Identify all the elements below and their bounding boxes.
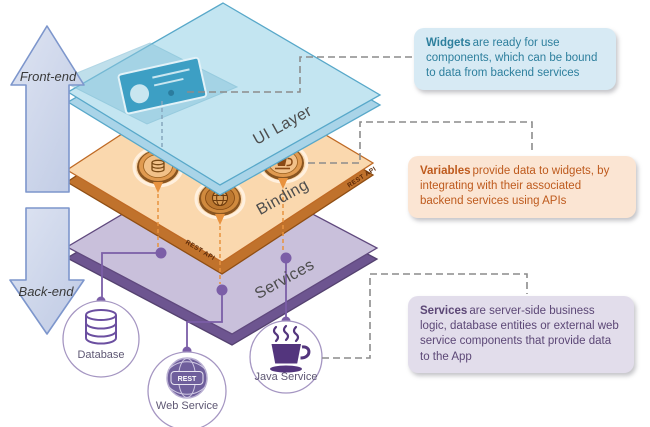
rest-badge: REST xyxy=(178,376,197,383)
database-label: Database xyxy=(51,349,151,361)
web-service-label: Web Service xyxy=(137,400,237,412)
globe-rest-icon: REST xyxy=(167,358,207,398)
front-end-label: Front-end xyxy=(6,69,90,84)
java-service-label: Java Service xyxy=(236,371,336,383)
services-callout-title: Services xyxy=(420,305,467,317)
widgets-callout: Widgetsare ready for use components, whi… xyxy=(414,28,616,90)
widgets-callout-title: Widgets xyxy=(426,37,471,49)
variables-callout-title: Variables xyxy=(420,165,471,177)
web-service-node: REST xyxy=(148,352,226,427)
architecture-diagram: REST xyxy=(0,0,650,427)
database-node xyxy=(63,301,139,377)
back-end-label: Back-end xyxy=(4,284,88,299)
services-callout: Servicesare server-side business logic, … xyxy=(408,296,634,373)
variables-callout: Variablesprovide data to widgets, by int… xyxy=(408,156,636,218)
database-icon xyxy=(86,310,116,344)
